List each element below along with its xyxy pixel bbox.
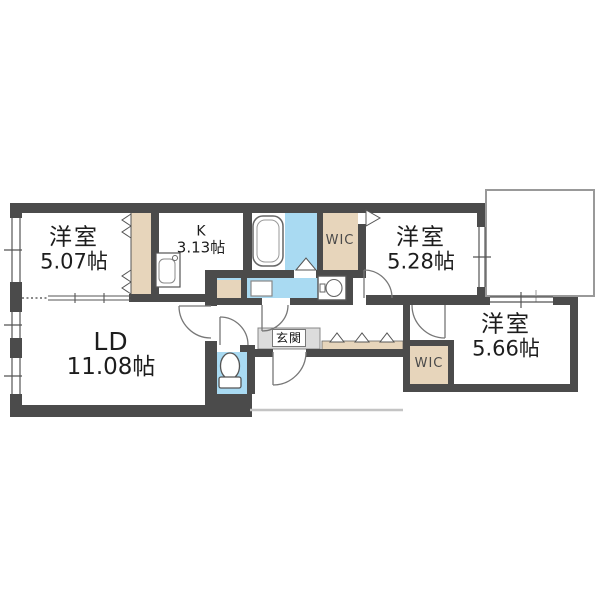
kitchen-sink-bowl bbox=[159, 259, 175, 283]
balcony bbox=[486, 190, 594, 296]
floorplan-drawing bbox=[0, 0, 600, 600]
folding-door-mark bbox=[380, 333, 394, 342]
east-bedroom-door-arc bbox=[412, 305, 445, 338]
wall-segment bbox=[243, 213, 252, 270]
wall-segment bbox=[358, 203, 366, 210]
wall-segment bbox=[10, 203, 487, 213]
wall-segment bbox=[240, 345, 247, 352]
label-bedroom-west: 洋室 5.07帖 bbox=[40, 225, 108, 273]
wall-segment bbox=[448, 340, 454, 384]
wall-segment bbox=[318, 349, 403, 357]
washing-machine-icon bbox=[251, 281, 272, 296]
wall-segment bbox=[247, 345, 255, 394]
wall-segment bbox=[129, 294, 217, 302]
room-size: 11.08帖 bbox=[67, 355, 156, 380]
folding-door-mark bbox=[355, 333, 369, 342]
wall-segment bbox=[403, 384, 578, 392]
wall-segment bbox=[10, 338, 22, 358]
wall-segment bbox=[410, 340, 448, 346]
wall-segment bbox=[570, 295, 578, 392]
room-name: 洋室 bbox=[472, 312, 540, 337]
wall-segment bbox=[205, 345, 214, 352]
wall-segment bbox=[241, 278, 247, 298]
folding-door-mark bbox=[122, 214, 131, 226]
label-wic-north: WIC bbox=[326, 234, 355, 248]
toilet-door-arc bbox=[220, 317, 248, 345]
wall-segment bbox=[10, 203, 22, 218]
wall-segment bbox=[366, 295, 490, 305]
bathroom-floor bbox=[285, 213, 317, 270]
wall-segment bbox=[317, 203, 323, 270]
wall-segment bbox=[403, 305, 410, 384]
washroom-door-arc bbox=[262, 305, 288, 331]
room-size: 5.07帖 bbox=[40, 250, 108, 273]
north-bedroom-door-arc bbox=[364, 270, 392, 298]
label-bedroom-north: 洋室 5.28帖 bbox=[387, 225, 455, 273]
linen-closet bbox=[217, 280, 241, 298]
room-name: 洋室 bbox=[387, 225, 455, 250]
wall-segment bbox=[205, 394, 252, 417]
room-name: LD bbox=[67, 328, 156, 355]
front-door-arc bbox=[273, 352, 306, 385]
washbasin-bowl bbox=[326, 280, 342, 297]
wall-segment bbox=[213, 298, 262, 305]
wall-segment bbox=[10, 282, 22, 312]
toilet-icon bbox=[221, 353, 240, 379]
toilet-tank bbox=[219, 377, 241, 388]
floorplan: 洋室 5.07帖 K 3.13帖 洋室 5.28帖 洋室 5.66帖 LD 11… bbox=[0, 0, 600, 600]
label-entrance: 玄関 bbox=[272, 329, 306, 347]
wall-segment bbox=[213, 270, 294, 278]
room-size: 5.66帖 bbox=[472, 337, 540, 360]
bathtub-inner bbox=[257, 220, 279, 262]
folding-door-mark bbox=[330, 333, 344, 342]
label-wic-south: WIC bbox=[415, 357, 444, 371]
room-name: K bbox=[177, 224, 225, 239]
ld-door-arc bbox=[179, 306, 211, 338]
label-living-dining: LD 11.08帖 bbox=[67, 328, 156, 380]
wall-segment bbox=[477, 287, 485, 305]
folding-door-mark bbox=[122, 226, 131, 238]
label-bedroom-east: 洋室 5.66帖 bbox=[472, 312, 540, 360]
bedroom-west-closet bbox=[131, 213, 151, 294]
wall-segment bbox=[358, 224, 366, 270]
room-size: 3.13帖 bbox=[177, 239, 225, 255]
folding-door-mark bbox=[122, 270, 131, 282]
room-name: 洋室 bbox=[40, 225, 108, 250]
label-kitchen: K 3.13帖 bbox=[177, 224, 225, 255]
wall-segment bbox=[306, 349, 322, 357]
wall-segment bbox=[477, 213, 485, 227]
folding-door-mark bbox=[122, 282, 131, 294]
room-size: 5.28帖 bbox=[387, 250, 455, 273]
washbasin-tap bbox=[320, 284, 325, 292]
